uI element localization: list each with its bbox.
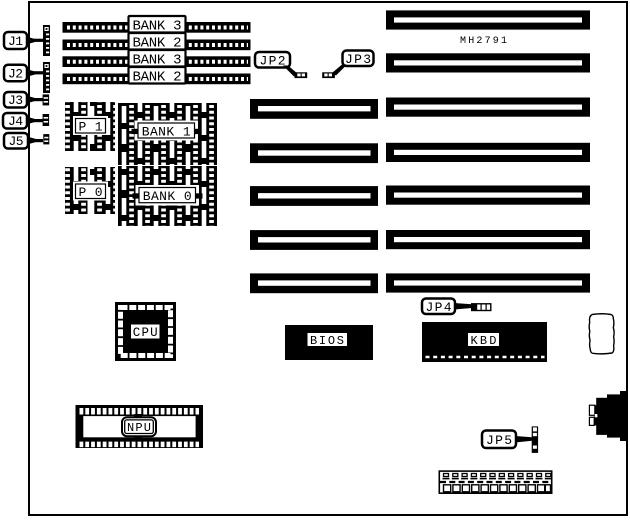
svg-text:CPU: CPU [133,326,158,340]
svg-text:NPU: NPU [127,421,151,435]
svg-text:P 0: P 0 [79,185,103,200]
svg-text:BANK 0: BANK 0 [143,189,192,204]
svg-text:J1: J1 [8,34,23,49]
svg-text:KBD: KBD [471,334,497,348]
svg-text:J2: J2 [8,67,23,82]
svg-text:MH2791: MH2791 [460,36,507,47]
svg-text:P 1: P 1 [79,120,103,135]
svg-text:J4: J4 [8,114,23,129]
svg-text:BANK 1: BANK 1 [142,125,191,140]
svg-text:JP4: JP4 [426,300,452,315]
svg-text:JP2: JP2 [260,54,286,69]
svg-text:J5: J5 [9,134,24,149]
svg-text:BANK 2: BANK 2 [133,70,182,86]
svg-text:BIOS: BIOS [310,334,344,348]
svg-text:JP3: JP3 [345,52,371,67]
svg-text:J3: J3 [8,93,23,108]
svg-text:JP5: JP5 [486,433,512,448]
